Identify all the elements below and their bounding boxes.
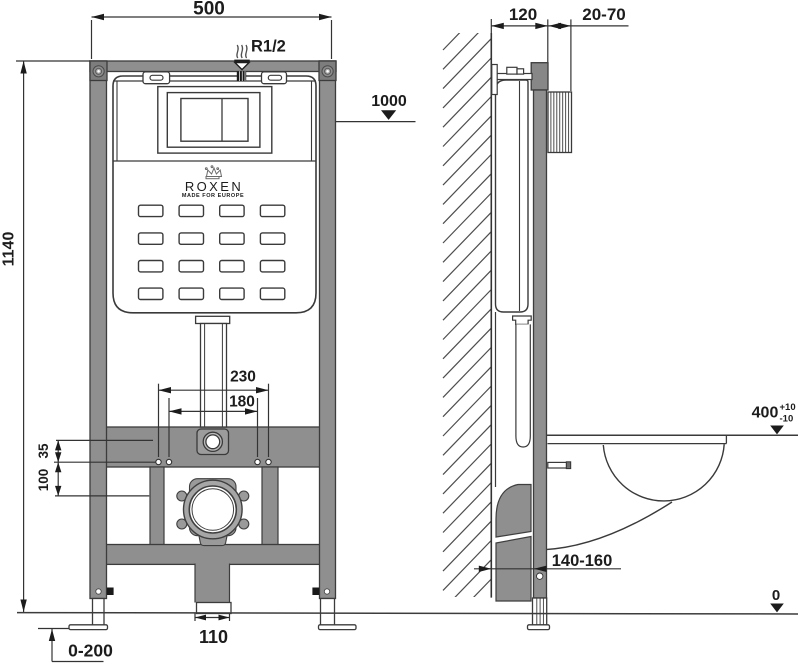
svg-text:110: 110 bbox=[199, 627, 228, 647]
svg-text:+10: +10 bbox=[780, 402, 796, 413]
svg-text:20-70: 20-70 bbox=[582, 5, 625, 24]
svg-text:0: 0 bbox=[772, 587, 780, 604]
svg-text:180: 180 bbox=[229, 393, 255, 410]
svg-text:35: 35 bbox=[36, 443, 51, 459]
svg-text:400: 400 bbox=[752, 405, 779, 422]
svg-text:1000: 1000 bbox=[371, 93, 407, 110]
svg-text:R1/2: R1/2 bbox=[251, 38, 286, 56]
svg-text:-10: -10 bbox=[780, 414, 794, 425]
svg-text:MADE FOR EUROPE: MADE FOR EUROPE bbox=[182, 193, 244, 199]
svg-text:ROXEN: ROXEN bbox=[185, 179, 243, 194]
svg-text:140-160: 140-160 bbox=[552, 552, 613, 570]
svg-text:500: 500 bbox=[193, 0, 225, 20]
svg-text:1140: 1140 bbox=[1, 232, 18, 267]
svg-text:100: 100 bbox=[36, 469, 51, 492]
svg-text:120: 120 bbox=[509, 5, 537, 24]
svg-text:0-200: 0-200 bbox=[68, 641, 113, 661]
svg-text:230: 230 bbox=[230, 369, 256, 386]
